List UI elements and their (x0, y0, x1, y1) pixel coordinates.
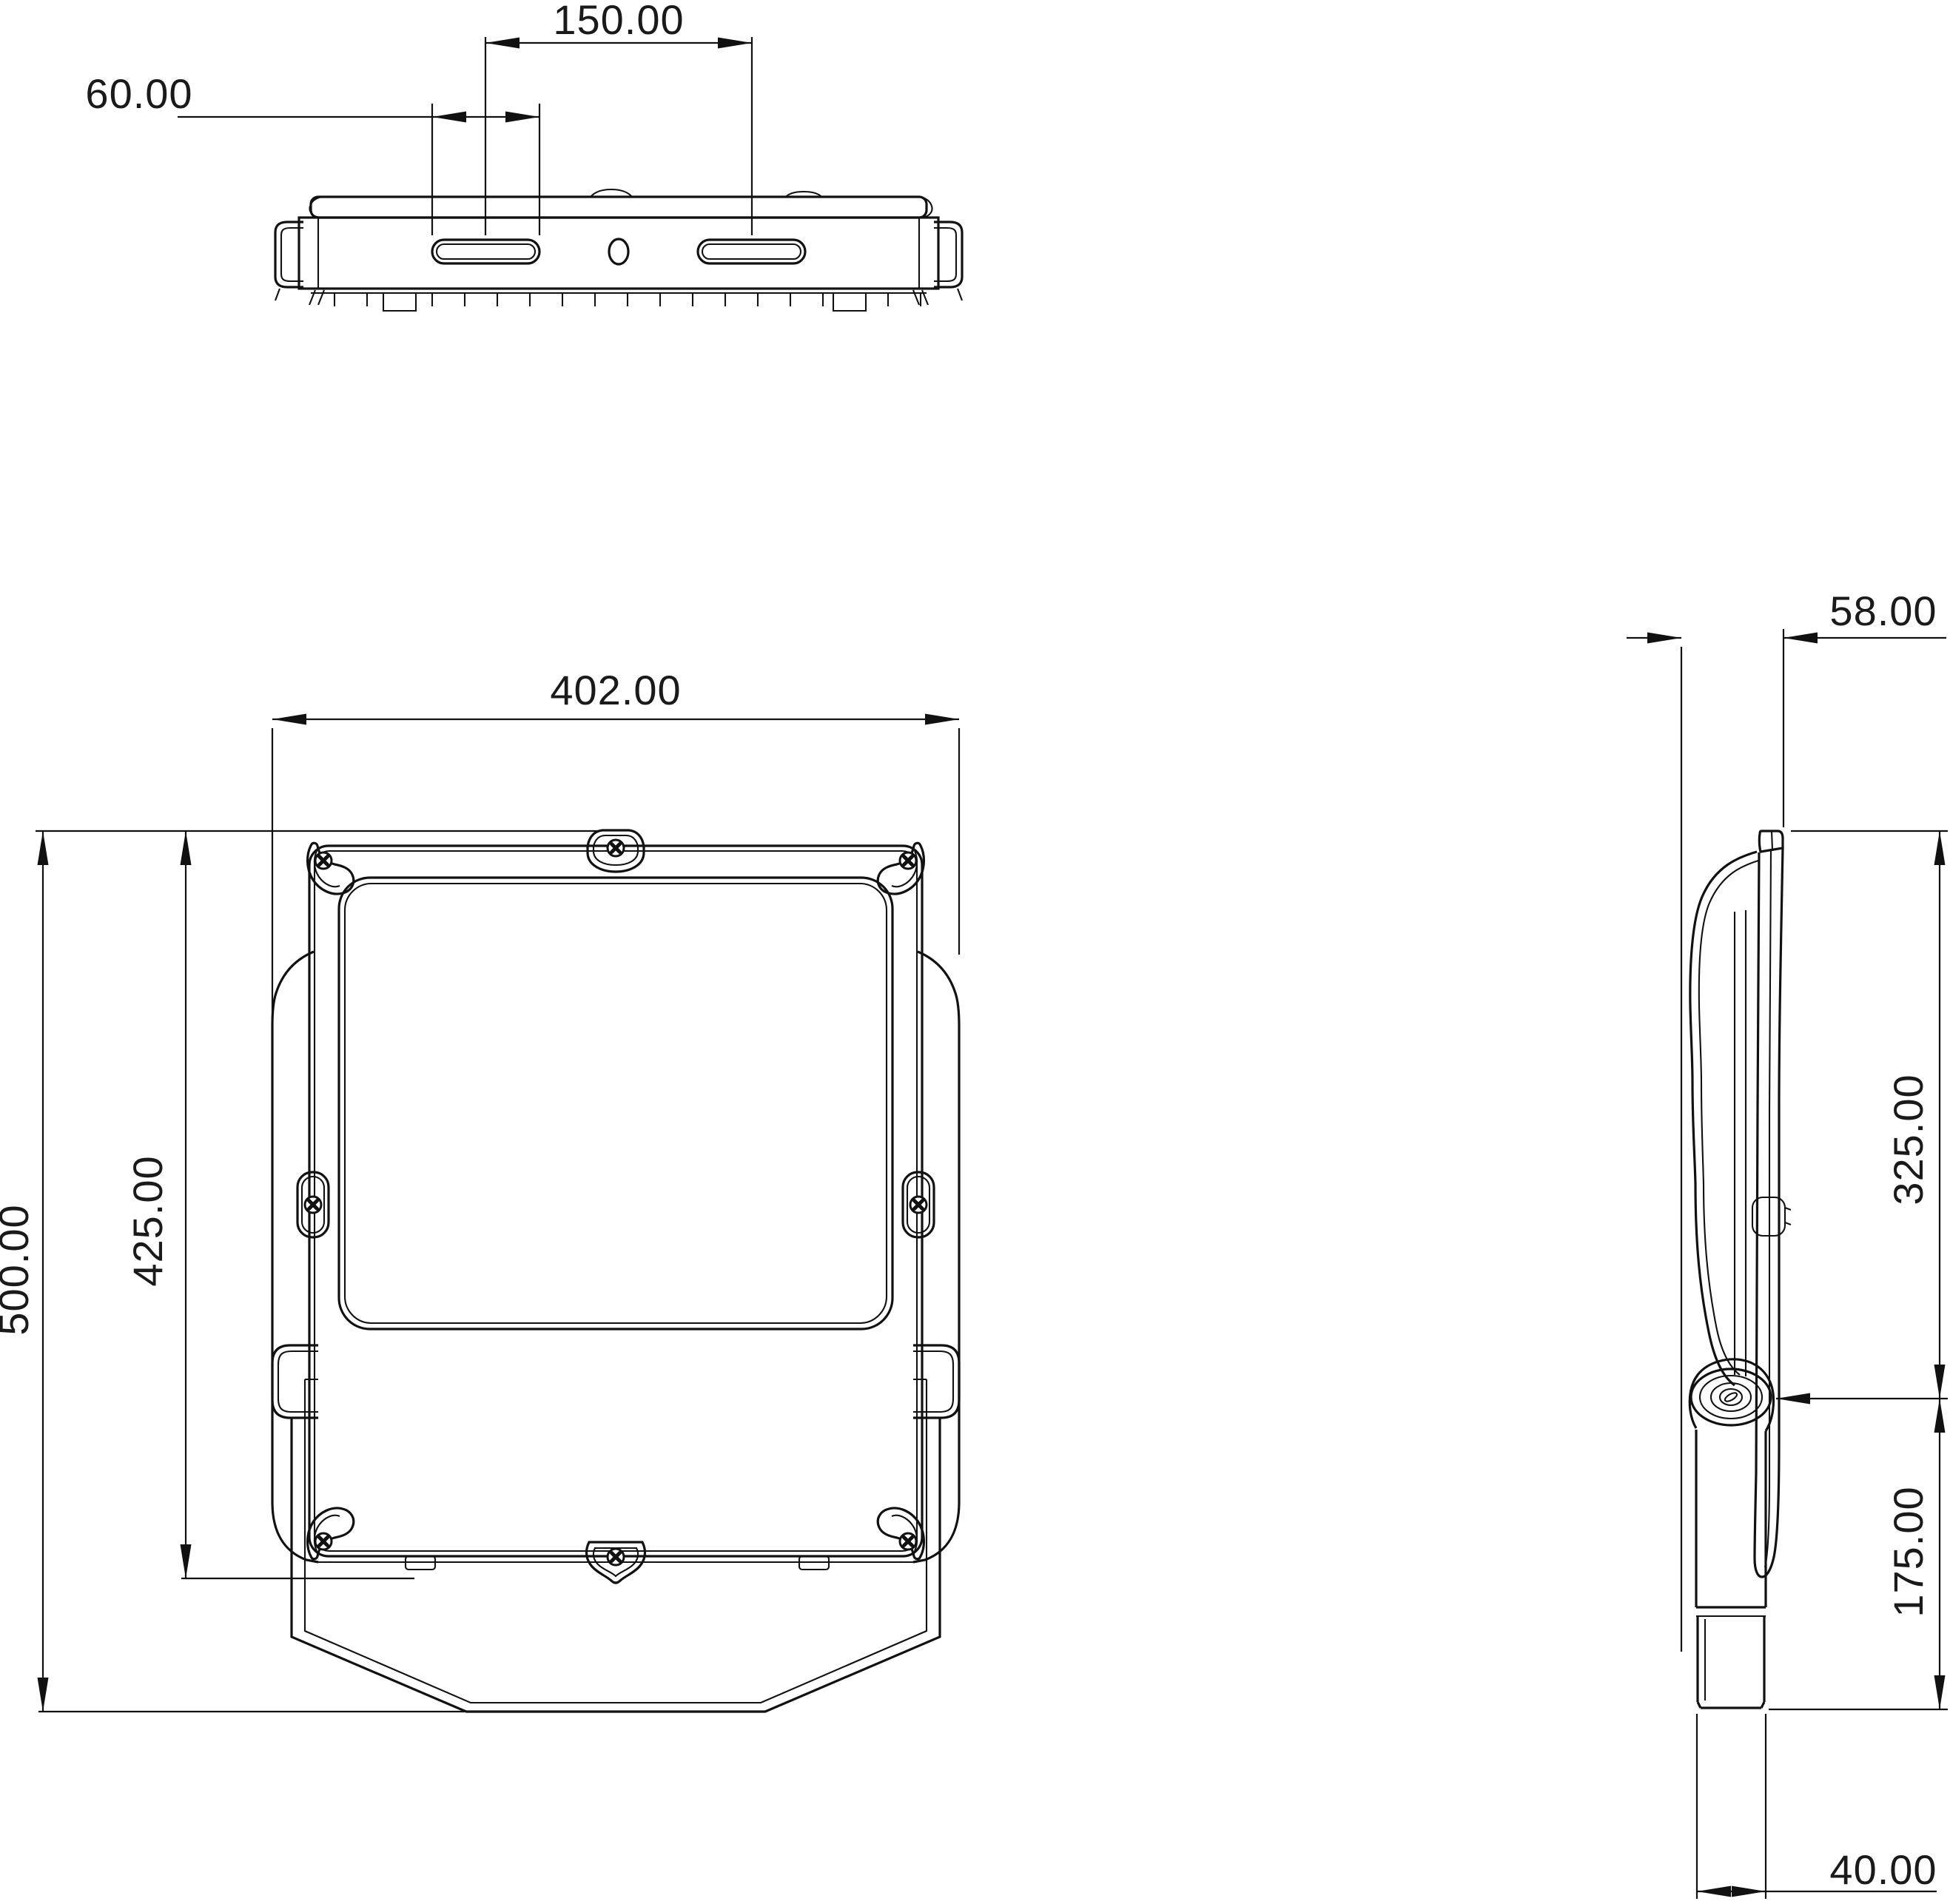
center-hole (609, 239, 628, 264)
front-view: 402.00 425.00 500.00 (0, 667, 959, 1712)
fin-tab-left (383, 293, 416, 311)
side-view-geometry (1690, 831, 1791, 1708)
dim-body-height-label: 425.00 (124, 1155, 171, 1286)
mounting-slot-right (698, 240, 805, 263)
dim-top-to-pivot: 325.00 (1776, 831, 1948, 1405)
pivot-boss-right (913, 1345, 959, 1418)
drawing-canvas: 150.00 60.00 (0, 0, 1950, 1904)
top-body (299, 218, 938, 289)
side-top-cap-inner (1772, 831, 1772, 850)
pivot-knob (1690, 1359, 1773, 1431)
dim-overall-height-label: 500.00 (0, 1204, 37, 1335)
fin-end-ticks (275, 289, 962, 305)
side-view: 58.00 325.00 175.00 40.00 (1627, 588, 1948, 1899)
side-rear-cover-inner (1699, 861, 1758, 1375)
dim-pivot-to-bottom-label: 175.00 (1885, 1486, 1931, 1617)
top-view-geometry (275, 189, 962, 311)
mounting-slot-left-inner (437, 244, 535, 259)
dim-overall-width: 402.00 (272, 667, 959, 1344)
dimension-drawing-sheet: 150.00 60.00 (0, 0, 1950, 1904)
side-tab-left (297, 1172, 329, 1237)
front-view-geometry (272, 830, 959, 1712)
dim-depth-label: 58.00 (1829, 588, 1937, 634)
mounting-slot-left (432, 240, 539, 263)
lens-bezel (339, 878, 892, 1329)
dim-bracket-width-label: 40.00 (1829, 1846, 1937, 1893)
dim-overall-height: 500.00 (0, 831, 465, 1712)
side-heatsink-lines (1735, 910, 1746, 1376)
mounting-slot-right-inner (702, 244, 801, 259)
dim-bracket-width: 40.00 (1697, 1714, 1937, 1899)
fin-tab-right (833, 293, 866, 311)
dim-pivot-to-bottom: 175.00 (1769, 1399, 1948, 1709)
side-tab-right (903, 1172, 934, 1237)
housing-silhouette-right (913, 952, 959, 1562)
dim-slot-length: 60.00 (85, 70, 539, 235)
top-lid (311, 197, 927, 218)
side-rear-cover (1690, 852, 1757, 1385)
dim-overall-width-label: 402.00 (550, 667, 681, 713)
dim-slot-spacing-label: 150.00 (553, 0, 684, 43)
housing-silhouette-left (272, 952, 318, 1562)
front-frame (309, 846, 922, 1556)
dim-top-to-pivot-label: 325.00 (1885, 1074, 1931, 1205)
top-body-end-lines (318, 218, 919, 289)
lens-window (345, 884, 887, 1323)
pivot-boss-left (272, 1345, 318, 1418)
top-view: 150.00 60.00 (85, 0, 962, 311)
dim-slot-length-label: 60.00 (85, 70, 192, 117)
front-frame-inner (315, 851, 917, 1551)
